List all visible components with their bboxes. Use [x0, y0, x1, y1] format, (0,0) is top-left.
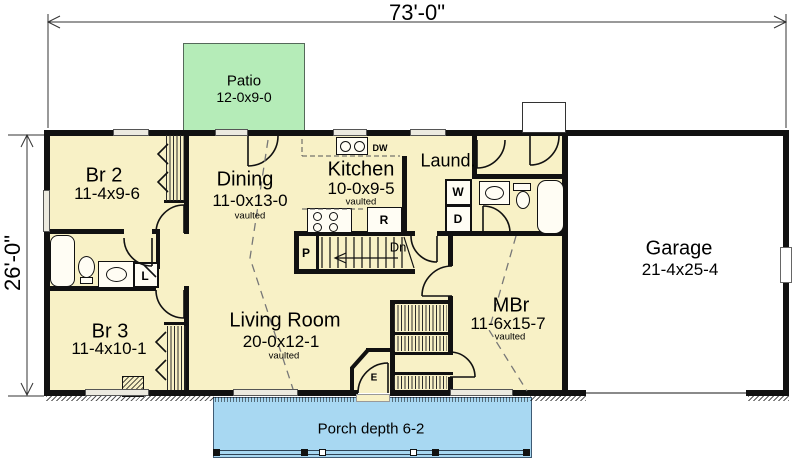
bifold-chevrons-br2: [158, 144, 168, 192]
mbr-door-arc: [422, 266, 452, 296]
depth-dimension-label: 26'-0": [0, 235, 26, 291]
mbr-hall-door-arc: [411, 236, 437, 262]
side-entry-door-arc: [530, 136, 559, 165]
stair-direction-arrow: [335, 253, 398, 263]
room-size-dining: 11-0x13-0: [212, 191, 287, 211]
br2-door-arc: [156, 205, 184, 233]
mudhall-door-arc: [477, 140, 505, 168]
patio-size-label: 12-0x9-0: [216, 89, 271, 105]
hall-bath-door-arc: [124, 238, 152, 266]
porch-label: Porch depth 6-2: [318, 421, 425, 438]
pantry-label: P: [302, 246, 310, 260]
room-label-living: Living Room: [229, 310, 340, 333]
floor-plan: 73'-0" 26'-0" Patio 12-0x9-0 Porch depth…: [0, 0, 800, 469]
room-label-dining: Dining: [217, 169, 274, 192]
room-size-br3: 11-4x10-1: [71, 339, 146, 359]
plan-linework: [0, 0, 800, 469]
room-label-laundry: Laund.: [420, 151, 475, 172]
patio-label: Patio: [227, 73, 261, 90]
width-dimension-label: 73'-0": [389, 0, 445, 26]
room-size-garage: 21-4x25-4: [642, 260, 719, 280]
linen-label: L: [141, 269, 148, 283]
mbr-closet-door-arc: [450, 352, 475, 377]
bifold-chevrons-br3: [156, 332, 166, 380]
entry-label: E: [371, 373, 378, 384]
refrigerator-label: R: [380, 213, 389, 227]
entry-closet-angled-wall: [352, 350, 368, 391]
width-dimension-line: [48, 14, 786, 128]
room-size-br2: 11-4x9-6: [74, 184, 140, 204]
patio-door-arc: [248, 136, 278, 166]
room-size-living: 20-0x12-1: [243, 332, 320, 352]
dryer-label: D: [454, 212, 463, 226]
room-label-garage: Garage: [646, 238, 713, 261]
room-note-dining: vaulted: [235, 211, 266, 222]
washer-label: W: [452, 185, 463, 199]
room-note-kitchen: vaulted: [346, 197, 377, 208]
stairs-down-label: Dn: [390, 240, 407, 255]
room-note-mbr: vaulted: [495, 332, 526, 343]
master-bath-door-arc: [483, 206, 510, 233]
dishwasher-label: DW: [373, 143, 388, 153]
room-note-living: vaulted: [269, 351, 300, 362]
br3-door-arc: [156, 290, 184, 318]
